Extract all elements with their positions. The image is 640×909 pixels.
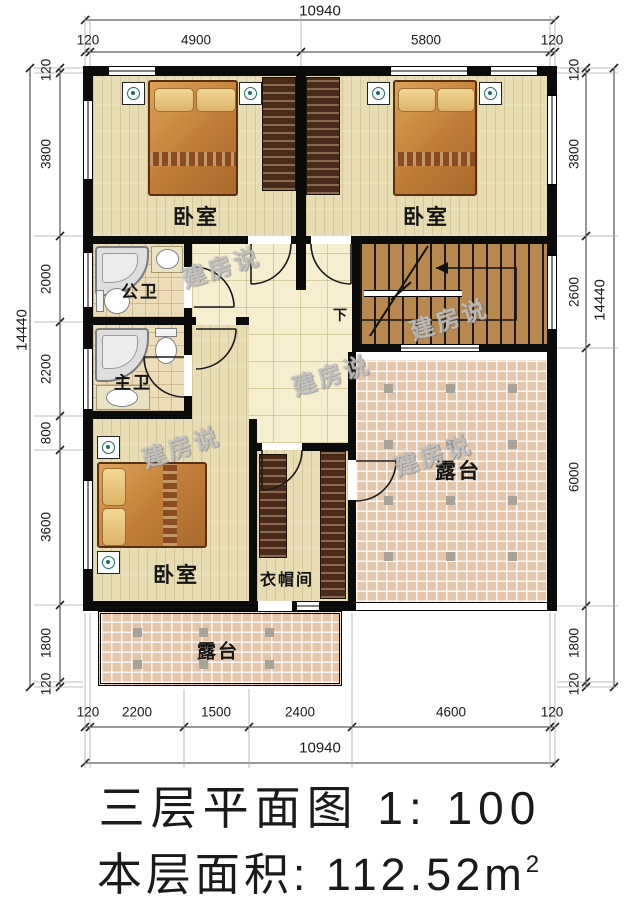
window-top-bedroom-right [390, 66, 468, 76]
pillow [102, 508, 126, 546]
window-stairs-south [400, 344, 480, 352]
plan-area: 本层面积: 112.52m2 [97, 838, 543, 903]
wardrobe-cloakroom-right [320, 451, 346, 599]
wall-bedrooms-south-2 [291, 236, 311, 244]
window-left-bedroom-bottom [83, 480, 93, 570]
bathtub-inner [102, 335, 138, 369]
dim-left-seg: 3600 [39, 512, 54, 542]
terrace-accent-tile [508, 384, 517, 393]
wall-bedroom-divider [296, 66, 306, 290]
pillow [437, 88, 475, 112]
toilet-tank [155, 328, 177, 337]
window-right-stairs [547, 255, 557, 330]
lamp-icon [102, 441, 115, 454]
dim-left-seg: 3800 [39, 139, 54, 169]
bed-top-left [148, 80, 238, 196]
label-bedroom-bottom: 卧室 [153, 559, 199, 589]
bed-blanket [163, 464, 177, 546]
floor-plan-canvas: 卧室 卧室 公卫 主卫 卧室 衣帽间 露台 露台 下 建房说 建房说 建房说 建… [0, 0, 640, 909]
label-terrace-right: 露台 [435, 455, 481, 485]
terrace-accent-tile [508, 440, 517, 449]
dim-top-seg: 5800 [411, 33, 441, 48]
plan-area-label: 本层面积: 112.52m [97, 849, 526, 900]
bed-top-right [393, 80, 477, 196]
dim-bottom-seg: 120 [77, 705, 100, 720]
dim-right-seg: 120 [567, 673, 582, 696]
terrace-accent-tile [446, 552, 455, 561]
label-terrace-bottom: 露台 [197, 637, 239, 664]
bed-bottom [97, 462, 207, 548]
stairs-handrail [364, 290, 462, 297]
wardrobe-bedroom-top-left [262, 77, 296, 191]
wall-bath-mid-1 [83, 317, 196, 325]
wall-terrace-west-2 [348, 500, 356, 611]
label-bedroom-top-right: 卧室 [403, 201, 449, 231]
wall-stairwell-west [352, 244, 360, 352]
wardrobe-cloakroom-left [259, 454, 287, 558]
terrace-accent-tile [384, 384, 393, 393]
dim-top-total: 10940 [299, 3, 341, 20]
dim-bottom-seg: 120 [541, 705, 564, 720]
window-right-bedroom [547, 95, 557, 185]
window-top-bedroom-left [108, 66, 156, 76]
plan-title: 三层平面图 1: 100 [99, 772, 542, 838]
lamp-icon [372, 87, 385, 100]
terrace-accent-tile [384, 440, 393, 449]
dim-top-seg: 4900 [181, 33, 211, 48]
wall-bedrooms-south-3 [351, 236, 557, 244]
label-stairs-down: 下 [333, 305, 347, 325]
nightstand [367, 82, 390, 105]
bed-blanket [150, 152, 236, 166]
toilet-tank [96, 290, 104, 312]
label-cloakroom: 衣帽间 [260, 566, 314, 590]
plan-area-sup: 2 [526, 851, 543, 878]
lamp-icon [244, 87, 257, 100]
pillow [102, 468, 126, 506]
dim-top-seg: 120 [541, 33, 564, 48]
dim-right-seg: 1800 [567, 628, 582, 658]
dim-top-seg: 120 [77, 33, 100, 48]
nightstand [97, 551, 120, 574]
dim-left-seg: 2200 [39, 354, 54, 384]
window-left-bath-master [83, 348, 93, 410]
terrace-accent-tile [446, 384, 455, 393]
terrace-accent-tile [265, 628, 274, 637]
dim-left-seg: 800 [39, 422, 54, 445]
lamp-icon [102, 556, 115, 569]
pillow [196, 88, 236, 112]
dim-bottom-seg: 1500 [201, 705, 231, 720]
dim-left-seg: 120 [39, 59, 54, 82]
toilet-icon [155, 337, 177, 364]
window-left-bedroom [83, 100, 93, 180]
sink-icon [156, 249, 179, 269]
dim-right-seg: 3800 [567, 139, 582, 169]
dim-bottom-total: 10940 [299, 740, 341, 757]
lamp-icon [484, 87, 497, 100]
dim-right-seg: 2600 [567, 277, 582, 307]
dim-right-total: 14440 [592, 279, 609, 321]
terrace-accent-tile [508, 496, 517, 505]
dim-left-total: 14440 [14, 309, 31, 351]
terrace-accent-tile [446, 440, 455, 449]
nightstand [122, 82, 145, 105]
bed-blanket [395, 152, 475, 166]
wall-bath-mid-2 [236, 317, 249, 325]
wall-bottom-3 [320, 601, 355, 611]
wall-bedrooms-south-1 [83, 236, 248, 244]
terrace-accent-tile [265, 660, 274, 669]
dim-right-seg: 120 [567, 59, 582, 82]
pillow [398, 88, 436, 112]
wall-bath-south [83, 411, 192, 419]
terrace-accent-tile [133, 660, 142, 669]
dim-bottom-seg: 2200 [122, 705, 152, 720]
label-bath-public: 公卫 [121, 278, 159, 303]
room-bedroom-corridor [192, 325, 249, 419]
lamp-icon [127, 87, 140, 100]
wall-bottom-1 [83, 601, 258, 611]
nightstand [97, 436, 120, 459]
nightstand [239, 82, 262, 105]
wall-stairs-south-2 [480, 344, 547, 352]
window-left-bath-public [83, 252, 93, 308]
terrace-accent-tile [446, 496, 455, 505]
terrace-accent-tile [508, 552, 517, 561]
window-top-corner [490, 66, 538, 76]
nightstand [479, 82, 502, 105]
dim-bottom-seg: 2400 [285, 705, 315, 720]
wall-stairs-south-1 [352, 344, 400, 352]
dim-bottom-seg: 4600 [436, 705, 466, 720]
wall-terrace-west-1 [348, 352, 356, 460]
railing-terrace-right [356, 602, 547, 611]
dim-right-seg: 6000 [567, 462, 582, 492]
terrace-accent-tile [133, 628, 142, 637]
label-bath-master: 主卫 [114, 369, 152, 394]
wall-bath-east-2 [184, 308, 192, 355]
dim-left-seg: 1800 [39, 628, 54, 658]
wall-bath-east-1 [184, 244, 192, 267]
label-bedroom-top-left: 卧室 [173, 201, 219, 231]
terrace-accent-tile [384, 496, 393, 505]
window-bottom-cloak [296, 601, 320, 611]
terrace-accent-tile [384, 552, 393, 561]
wall-cloak-north-1 [249, 443, 262, 451]
dim-left-seg: 120 [39, 673, 54, 696]
dim-left-seg: 2000 [39, 264, 54, 294]
wardrobe-bedroom-top-right [306, 77, 340, 195]
pillow [154, 88, 194, 112]
